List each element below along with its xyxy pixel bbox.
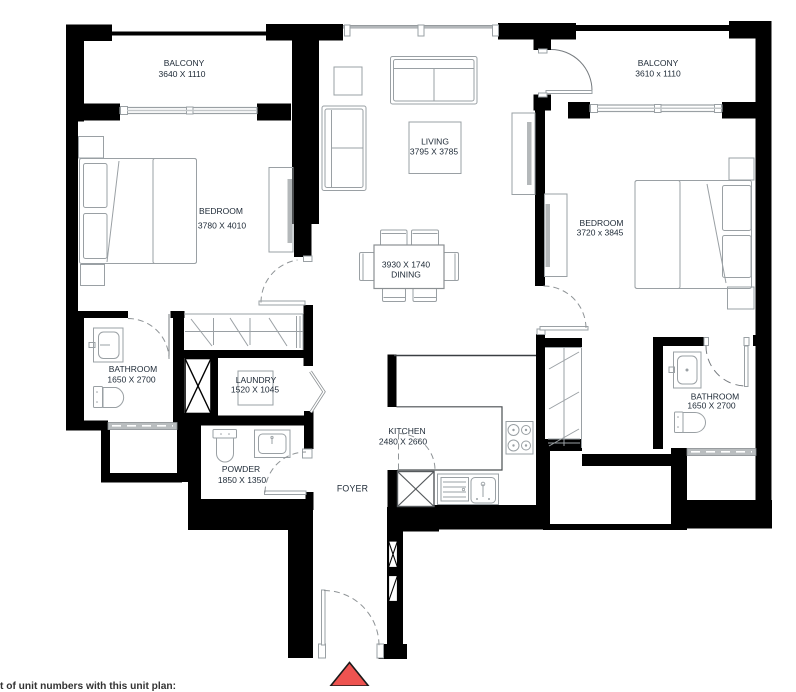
svg-text:3930 X 1740: 3930 X 1740 [382,260,430,270]
svg-text:2480 X 2660: 2480 X 2660 [379,437,427,447]
svg-text:1850 X 1350: 1850 X 1350 [218,475,266,485]
svg-text:DINING: DINING [391,270,421,280]
svg-text:3780 X 4010: 3780 X 4010 [198,221,246,231]
svg-text:FOYER: FOYER [337,484,368,494]
svg-text:LIVING: LIVING [421,137,449,147]
svg-text:1520 X 1045: 1520 X 1045 [231,385,279,395]
svg-text:LAUNDRY: LAUNDRY [236,375,277,385]
svg-text:POWDER: POWDER [222,464,260,474]
svg-text:3720 x 3845: 3720 x 3845 [577,228,624,238]
svg-text:KITCHEN: KITCHEN [388,426,425,436]
svg-text:3610 x 1110: 3610 x 1110 [635,69,681,79]
svg-text:1650 X 2700: 1650 X 2700 [107,375,155,385]
svg-text:BEDROOM: BEDROOM [580,218,624,228]
svg-text:1650 X 2700: 1650 X 2700 [687,401,735,411]
svg-text:3795 X 3785: 3795 X 3785 [410,147,458,157]
svg-text:3640 X 1110: 3640 X 1110 [159,69,206,79]
svg-text:BATHROOM: BATHROOM [109,364,157,374]
svg-text:BEDROOM: BEDROOM [199,206,243,216]
svg-text:BALCONY: BALCONY [164,58,205,68]
svg-text:BALCONY: BALCONY [638,58,679,68]
